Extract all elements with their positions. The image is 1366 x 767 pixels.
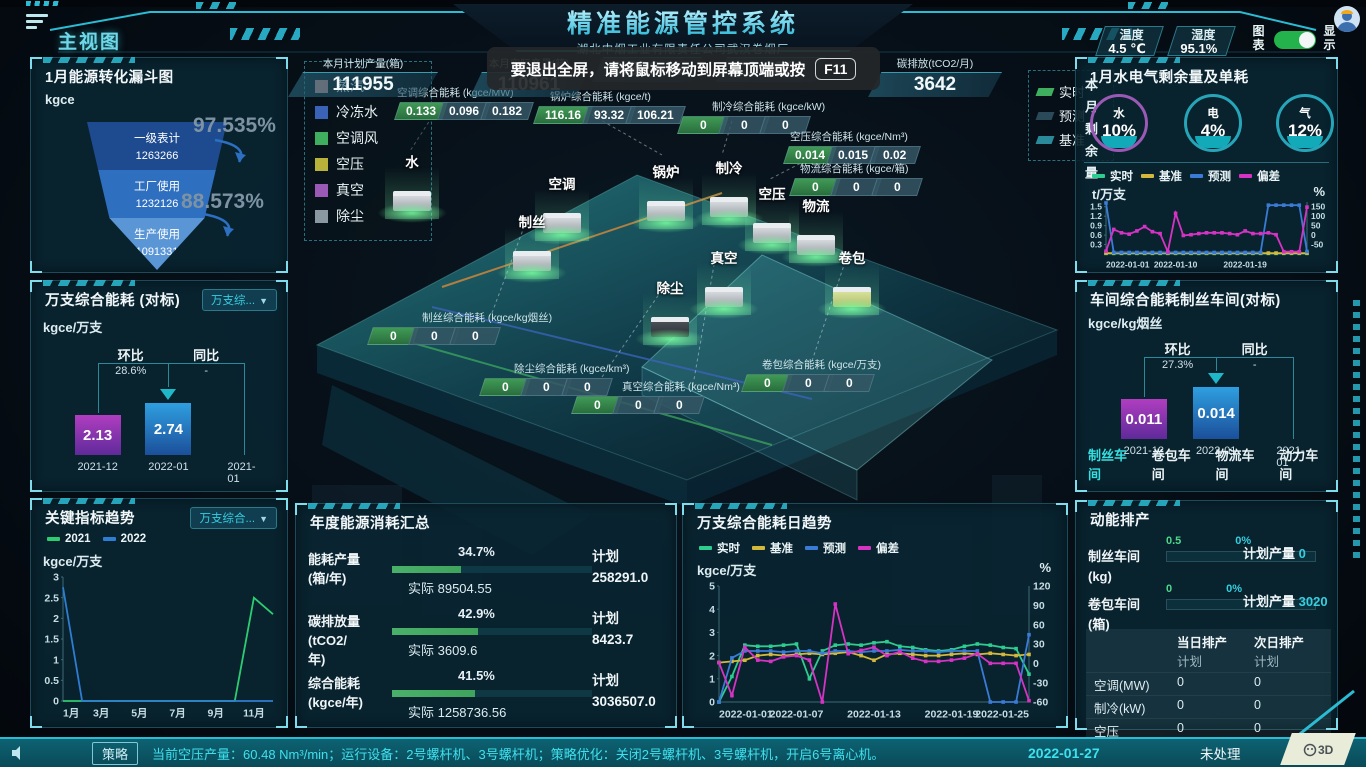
- svg-text:0.9: 0.9: [1090, 221, 1102, 231]
- annual-row-plan: 计划8423.7: [592, 608, 668, 650]
- kpi-value-cell: 0: [449, 327, 501, 345]
- header-hash-top-right: [1128, 2, 1168, 9]
- kpi-strip-values: 116.1693.32106.21: [536, 106, 678, 124]
- legend-swatch: [315, 132, 328, 145]
- svg-text:1.5: 1.5: [1090, 202, 1102, 212]
- legend-swatch: [315, 158, 328, 171]
- node-锅炉[interactable]: 锅炉: [634, 161, 698, 221]
- schedule-row-plan: 计划产量 3020: [1243, 591, 1329, 610]
- f11-key-hint: F11: [815, 58, 856, 80]
- kpi-value-cell: 0: [871, 178, 923, 196]
- svg-text:-30: -30: [1033, 677, 1048, 689]
- temperature-value: 4.5 ℃: [1108, 42, 1145, 56]
- top-deco-glyphs: [26, 1, 60, 6]
- annual-row-actual: 实际 1258736.56: [408, 702, 506, 721]
- stat-chip: 本月计划产量(箱)111955: [288, 56, 438, 97]
- water-legend-item[interactable]: 实时: [1092, 168, 1133, 184]
- legend-label: 偏差: [1257, 168, 1280, 184]
- trend-legend: 20212022: [47, 533, 146, 545]
- benchmark-line: [1216, 357, 1217, 371]
- legend-swatch: [315, 184, 328, 197]
- svg-text:0: 0: [1033, 658, 1039, 670]
- trend-unit: kgce/万支: [43, 551, 102, 570]
- schedule-row: 制丝车间(kg)0.50%计划产量 0: [1088, 535, 1329, 579]
- display-toggle-switch[interactable]: [1274, 31, 1316, 49]
- node-除尘[interactable]: 除尘: [638, 277, 702, 337]
- mom-value: 27.3%: [1162, 359, 1193, 371]
- svg-text:-60: -60: [1033, 697, 1048, 709]
- annual-row-label: 碳排放量 (tCO2/ 年): [308, 612, 390, 669]
- svg-text:5: 5: [709, 581, 715, 593]
- kpi-strip-title: 物流综合能耗 (kgce/箱): [800, 161, 915, 176]
- daily-legend-item[interactable]: 预测: [805, 540, 846, 556]
- fullscreen-exit-toast: 要退出全屏，请将鼠标移动到屏幕顶端或按 F11: [487, 47, 880, 90]
- svg-text:100: 100: [1311, 211, 1325, 221]
- trend-legend-item[interactable]: 2022: [103, 533, 147, 545]
- annual-row-percent: 42.9%: [458, 606, 495, 621]
- svg-text:0: 0: [53, 696, 59, 708]
- view-3d-badge[interactable]: 3D: [1280, 733, 1356, 765]
- water-legend-item[interactable]: 预测: [1190, 168, 1231, 184]
- svg-text:7月: 7月: [169, 708, 185, 720]
- footer-date: 2022-01-27: [1028, 745, 1100, 761]
- workshop-benchmark-panel: 车间综合能耗制丝车间(对标) kgce/kg烟丝 环比27.3%同比-0.011…: [1075, 280, 1338, 492]
- kpi-strip-title: 制丝综合能耗 (kgce/kg烟丝): [422, 310, 552, 325]
- benchmark-bar: 0.014: [1193, 387, 1239, 439]
- legend-label: 冷冻水: [336, 102, 378, 122]
- svg-text:90: 90: [1033, 600, 1045, 612]
- benchmark-line: [244, 363, 245, 455]
- svg-text:2.5: 2.5: [44, 592, 59, 604]
- humidity-label: 湿度: [1185, 28, 1222, 42]
- kpi-strip-values: 000: [370, 327, 552, 345]
- chart-toggle-label: 图表: [1251, 24, 1266, 52]
- svg-text:2022-01-01: 2022-01-01: [1106, 260, 1150, 270]
- kpi-strip-title: 除尘综合能耗 (kgce/km³): [514, 361, 630, 376]
- funnel-panel: 1月能源转化漏斗图 kgce 一级表计1263266工厂使用1232126生产使…: [30, 57, 288, 273]
- schedule-panel: 动能排产 制丝车间(kg)0.50%计划产量 0卷包车间(箱)00%计划产量 3…: [1075, 500, 1338, 730]
- funnel-panel-title: 1月能源转化漏斗图: [45, 66, 287, 87]
- legend-swatch: [699, 546, 712, 550]
- water-legend: 实时基准预测偏差: [1092, 168, 1280, 184]
- gauge-水: 水10%: [1090, 94, 1148, 152]
- water-line-chart: 0.30.60.91.21.5-500501001502022-01-01202…: [1080, 198, 1335, 270]
- water-panel-title: 1月水电气剩余量及单耗: [1090, 66, 1337, 87]
- annual-panel: 年度能源消耗汇总 能耗产量 (箱/年)34.7%实际 89504.55计划258…: [295, 503, 677, 728]
- schedule-row-name: 制丝车间(kg): [1088, 547, 1154, 587]
- kpi-strip: 卷包综合能耗 (kgce/万支)000: [744, 357, 881, 392]
- benchmark-x-label: 2021-12: [77, 461, 117, 473]
- svg-text:2022-01-07: 2022-01-07: [770, 709, 824, 721]
- kpi-strip-values: 000: [744, 374, 881, 392]
- svg-text:1月: 1月: [63, 708, 79, 720]
- svg-text:9月: 9月: [208, 708, 224, 720]
- funnel-arrow-1: [209, 136, 255, 172]
- annual-progress-track: [392, 628, 592, 635]
- benchmark-x-label: 2022-01: [148, 461, 188, 473]
- kpi-strip: 真空综合能耗 (kgce/Nm³)000: [574, 379, 740, 414]
- svg-text:3月: 3月: [93, 708, 109, 720]
- legend-label: 2022: [121, 533, 147, 545]
- annual-progress-fill: [392, 566, 461, 573]
- humidity-chip: 湿度 95.1%: [1167, 26, 1236, 56]
- gauge-气: 气12%: [1276, 94, 1334, 152]
- temperature-label: 温度: [1113, 28, 1150, 42]
- mom-value: 28.6%: [115, 365, 146, 377]
- app-title: 精准能源管控系统: [483, 4, 883, 40]
- node-水[interactable]: 水: [380, 151, 444, 211]
- annual-row: 能耗产量 (箱/年)34.7%实际 89504.55计划258291.0: [308, 544, 668, 610]
- workshop-unit: kgce/kg烟丝: [1088, 313, 1162, 332]
- water-unit-right: %: [1313, 184, 1325, 199]
- legend-label: 基准: [770, 540, 793, 556]
- benchmark-bar: 2.74: [145, 403, 191, 455]
- annual-row-plan: 计划258291.0: [592, 546, 668, 588]
- svg-text:150: 150: [1311, 202, 1325, 212]
- strategy-message: 当前空压产量：60.48 Nm³/min；运行设备：2号螺杆机、3号螺杆机；策略…: [152, 744, 892, 763]
- trend-legend-item[interactable]: 2021: [47, 533, 91, 545]
- legend-swatch: [805, 546, 818, 550]
- dashboard-root: 主视图 精准能源管控系统 湖北中烟工业有限责任公司武汉卷烟厂 温度 4.5 ℃ …: [0, 0, 1366, 767]
- water-elec-gas-panel: 1月水电气剩余量及单耗 本月剩余量 水10%电4%气12% 实时基准预测偏差 t…: [1075, 57, 1338, 273]
- legend-swatch: [1036, 88, 1055, 96]
- legend-swatch: [315, 210, 328, 223]
- funnel-arrow-2: [197, 210, 243, 246]
- display-toggle-text: 显示: [1322, 24, 1337, 52]
- trend-panel: 关键指标趋势 万支综合...▼ 20212022 kgce/万支 00.511.…: [30, 498, 288, 728]
- legend-swatch: [1036, 112, 1055, 120]
- water-legend-item[interactable]: 偏差: [1239, 168, 1280, 184]
- tab-物流车间[interactable]: 物流车间: [1216, 445, 1266, 483]
- water-legend-item[interactable]: 基准: [1141, 168, 1182, 184]
- funnel-rate-1: 97.535%: [193, 114, 276, 138]
- svg-text:1.5: 1.5: [44, 634, 59, 646]
- annual-progress-track: [392, 690, 592, 697]
- daily-line-chart: 012345-60-3003060901202022-01-012022-01-…: [689, 578, 1063, 724]
- tab-卷包车间[interactable]: 卷包车间: [1152, 445, 1202, 483]
- gauge-电: 电4%: [1184, 94, 1242, 152]
- annual-row: 碳排放量 (tCO2/ 年)42.9%实际 3609.6计划8423.7: [308, 606, 668, 672]
- trend-line-chart: 00.511.522.531月3月5月7月9月11月: [37, 569, 283, 723]
- workshop-tabs: 制丝车间卷包车间物流车间动力车间: [1088, 445, 1329, 483]
- legend-label: 预测: [1208, 168, 1231, 184]
- node-glow: [377, 203, 447, 223]
- kpi-strip-values: 000: [574, 396, 740, 414]
- legend-label: 除尘: [336, 206, 364, 226]
- menu-icon[interactable]: [26, 14, 48, 30]
- kpi-strip-title: 卷包综合能耗 (kgce/万支): [762, 357, 881, 372]
- annual-row-actual: 实际 3609.6: [408, 640, 477, 659]
- legend-label: 实时: [1110, 168, 1133, 184]
- svg-text:2: 2: [709, 650, 715, 662]
- svg-text:2022-01-13: 2022-01-13: [847, 709, 901, 721]
- legend-swatch: [1092, 174, 1105, 178]
- yoy-value: -: [1253, 359, 1257, 371]
- legend-swatch: [752, 546, 765, 550]
- svg-text:3: 3: [53, 572, 59, 584]
- daily-legend-item[interactable]: 基准: [752, 540, 793, 556]
- svg-text:120: 120: [1033, 581, 1051, 593]
- svg-text:2: 2: [53, 613, 59, 625]
- svg-text:1: 1: [709, 673, 715, 685]
- kpi-strip-values: 0.1330.0960.182: [397, 102, 526, 120]
- kpi-strip: 物流综合能耗 (kgce/箱)000: [792, 161, 915, 196]
- svg-text:2022-01-10: 2022-01-10: [1154, 260, 1198, 270]
- annual-panel-title: 年度能源消耗汇总: [310, 512, 676, 533]
- kpi-value-cell: 0.182: [480, 102, 534, 120]
- kpi-value-cell: 106.21: [625, 106, 686, 124]
- legend-label: 预测: [823, 540, 846, 556]
- svg-text:0: 0: [709, 697, 715, 709]
- daily-legend-item[interactable]: 偏差: [858, 540, 899, 556]
- svg-text:60: 60: [1033, 619, 1045, 631]
- schedule-table-header: 当日排产次日排产: [1086, 629, 1331, 651]
- toast-message: 要退出全屏，请将鼠标移动到屏幕顶端或按: [511, 58, 806, 80]
- gauge-value: 12%: [1279, 121, 1331, 141]
- gauge-value: 10%: [1093, 121, 1145, 141]
- svg-text:3: 3: [709, 627, 715, 639]
- schedule-table-subheader: 计划计划: [1086, 651, 1331, 672]
- schedule-table-row: 空调(MW)00: [1086, 672, 1331, 695]
- annual-row-percent: 34.7%: [458, 544, 495, 559]
- legend-swatch: [47, 537, 60, 541]
- annual-row-label: 综合能耗 (kgce/年): [308, 674, 390, 712]
- annual-progress-fill: [392, 690, 475, 697]
- svg-text:1.2: 1.2: [1090, 211, 1102, 221]
- legend-label: 真空: [336, 180, 364, 200]
- node-制丝[interactable]: 制丝: [500, 211, 564, 271]
- divider: [1084, 162, 1329, 163]
- legend-swatch: [315, 106, 328, 119]
- kpi-strip-values: 000: [792, 178, 915, 196]
- footer-status: 未处理: [1200, 743, 1241, 763]
- kpi-strip-title: 制冷综合能耗 (kgce/kW): [712, 99, 825, 114]
- benchmark-dropdown[interactable]: 万支综...▼: [202, 289, 277, 311]
- yoy-label: 同比: [193, 345, 219, 364]
- schedule-row-plan: 计划产量 0: [1243, 543, 1329, 562]
- schedule-table-row: 制冷(kW)00: [1086, 695, 1331, 718]
- svg-text:0.3: 0.3: [1090, 240, 1102, 250]
- legend-swatch: [1239, 174, 1252, 178]
- node-物流[interactable]: 物流: [784, 195, 848, 255]
- stat-box: 111955: [288, 72, 438, 97]
- speaker-icon: [10, 745, 26, 761]
- kpi-strip: 空压综合能耗 (kgce/Nm³)0.0140.0150.02: [786, 129, 913, 164]
- funnel-stage-value: 1263266: [87, 146, 227, 162]
- annual-row: 综合能耗 (kgce/年)41.5%实际 1258736.56计划3036507…: [308, 668, 668, 734]
- mom-label: 环比: [118, 345, 144, 364]
- legend-label: 2021: [65, 533, 91, 545]
- annual-row-plan: 计划3036507.0: [592, 670, 668, 712]
- toggle-knob: [1299, 32, 1315, 48]
- kpi-strip-title: 空压综合能耗 (kgce/Nm³): [790, 129, 913, 144]
- svg-text:5月: 5月: [131, 708, 147, 720]
- legend-swatch: [1190, 174, 1203, 178]
- annual-progress-track: [392, 566, 592, 573]
- humidity-value: 95.1%: [1180, 42, 1217, 56]
- daily-trend-panel: 万支综合能耗日趋势 实时基准预测偏差 kgce/万支 % 012345-60-3…: [682, 503, 1068, 728]
- gauge-name: 水: [1093, 105, 1145, 121]
- svg-text:1: 1: [53, 654, 59, 666]
- legend-label: 偏差: [876, 540, 899, 556]
- svg-text:2022-01-25: 2022-01-25: [975, 709, 1029, 721]
- kpi-strip: 制丝综合能耗 (kgce/kg烟丝)000: [370, 310, 552, 345]
- strategy-badge: 策略: [92, 742, 138, 765]
- benchmark-line: [1293, 357, 1294, 439]
- stat-label: 碳排放(tCO2/月): [868, 56, 1002, 71]
- yoy-label: 同比: [1242, 339, 1268, 358]
- daily-legend: 实时基准预测偏差: [699, 540, 899, 556]
- svg-text:-50: -50: [1311, 240, 1324, 250]
- flow-legend-空调风: 空调风: [315, 128, 421, 148]
- benchmark-line: [168, 363, 169, 387]
- svg-text:0.6: 0.6: [1090, 230, 1102, 240]
- stat-label: 本月计划产量(箱): [288, 56, 438, 71]
- svg-text:0.5: 0.5: [44, 675, 59, 687]
- annual-progress-fill: [392, 628, 478, 635]
- legend-swatch: [858, 546, 871, 550]
- benchmark-unit: kgce/万支: [43, 317, 102, 336]
- stat-chip: 碳排放(tCO2/月)3642: [868, 56, 1002, 97]
- stat-box: 3642: [868, 72, 1002, 97]
- benchmark-bar: 2.13: [75, 415, 121, 455]
- kpi-value-cell: 0: [653, 396, 705, 414]
- svg-text:30: 30: [1033, 639, 1045, 651]
- workshop-diagram: 环比27.3%同比-0.0112021-120.0142022-012021-0…: [1086, 331, 1327, 463]
- annual-row-label: 能耗产量 (箱/年): [308, 550, 390, 588]
- svg-text:2022-01-19: 2022-01-19: [925, 709, 979, 721]
- annual-row-percent: 41.5%: [458, 668, 495, 683]
- svg-text:50: 50: [1311, 221, 1321, 231]
- legend-label: 空压: [336, 154, 364, 174]
- benchmark-line: [98, 363, 99, 413]
- funnel-unit: kgce: [45, 92, 75, 107]
- stat-value: 111955: [302, 74, 424, 96]
- status-bar: 策略 当前空压产量：60.48 Nm³/min；运行设备：2号螺杆机、3号螺杆机…: [0, 737, 1366, 767]
- gauge-value: 4%: [1187, 121, 1239, 141]
- down-arrow: [1208, 373, 1224, 384]
- node-glow: [817, 299, 887, 319]
- daily-panel-title: 万支综合能耗日趋势: [697, 512, 1067, 533]
- stat-value: 3642: [882, 74, 988, 96]
- svg-text:4: 4: [709, 604, 715, 616]
- svg-text:0: 0: [1311, 230, 1316, 240]
- legend-swatch: [1036, 136, 1055, 144]
- down-arrow: [160, 389, 176, 400]
- mom-label: 环比: [1165, 339, 1191, 358]
- header-hash-left: [230, 28, 300, 40]
- benchmark-line: [1144, 357, 1145, 397]
- temperature-chip: 温度 4.5 ℃: [1095, 26, 1164, 56]
- tab-动力车间[interactable]: 动力车间: [1279, 445, 1329, 483]
- legend-label: 空调风: [336, 128, 378, 148]
- kpi-value-cell: 0: [823, 374, 875, 392]
- legend-label: 实时: [717, 540, 740, 556]
- legend-swatch: [103, 537, 116, 541]
- workshop-panel-title: 车间综合能耗制丝车间(对标): [1090, 289, 1337, 310]
- node-glow: [635, 329, 705, 349]
- daily-legend-item[interactable]: 实时: [699, 540, 740, 556]
- annual-row-actual: 实际 89504.55: [408, 578, 492, 597]
- node-卷包[interactable]: 卷包: [820, 247, 884, 307]
- view-title: 主视图: [58, 27, 121, 54]
- daily-unit-left: kgce/万支: [697, 560, 756, 579]
- schedule-row: 卷包车间(箱)00%计划产量 3020: [1088, 583, 1329, 627]
- header-hash-top-left: [196, 2, 236, 9]
- gauge-name: 气: [1279, 105, 1331, 121]
- trend-dropdown[interactable]: 万支综合...▼: [190, 507, 277, 529]
- user-avatar[interactable]: [1334, 6, 1360, 32]
- tab-制丝车间[interactable]: 制丝车间: [1088, 445, 1138, 483]
- schedule-panel-title: 动能排产: [1090, 509, 1337, 530]
- right-edge-decoration: [1353, 300, 1360, 560]
- benchmark-x-label: 2021-01: [227, 461, 260, 485]
- legend-swatch: [1141, 174, 1154, 178]
- benchmark-diagram: 环比28.6%同比-2.132021-122.742022-012021-01: [41, 337, 277, 485]
- node-glow: [497, 263, 567, 283]
- svg-text:11月: 11月: [243, 708, 265, 720]
- benchmark-bar: 0.011: [1121, 399, 1167, 439]
- yoy-value: -: [204, 365, 208, 377]
- node-glow: [631, 213, 701, 233]
- legend-label: 基准: [1159, 168, 1182, 184]
- benchmark-panel: 万支综合能耗 (对标) 万支综...▼ kgce/万支 环比28.6%同比-2.…: [30, 280, 288, 492]
- daily-unit-right: %: [1039, 560, 1051, 575]
- svg-text:2022-01-01: 2022-01-01: [719, 709, 773, 721]
- gauge-name: 电: [1187, 105, 1239, 121]
- svg-text:2022-01-19: 2022-01-19: [1223, 260, 1267, 270]
- kpi-strip-title: 真空综合能耗 (kgce/Nm³): [622, 379, 740, 394]
